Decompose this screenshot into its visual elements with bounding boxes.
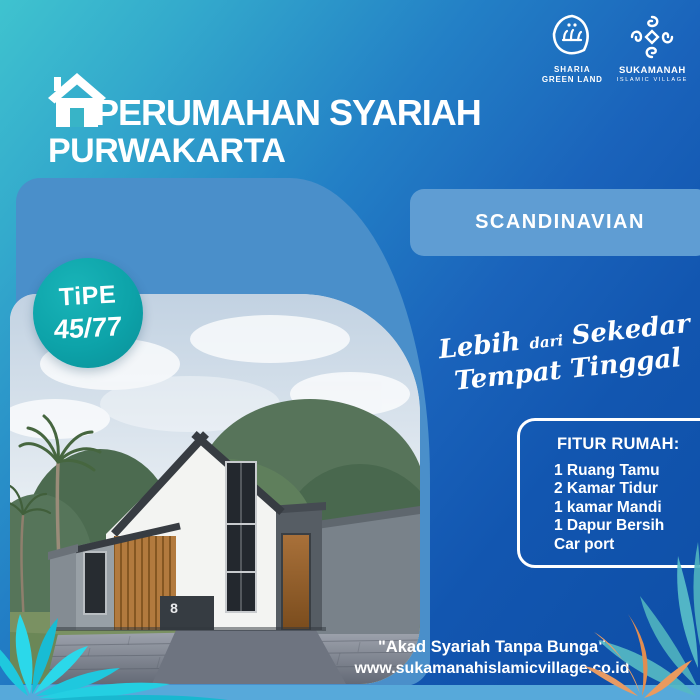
house-number: 8	[162, 600, 186, 616]
footer-website: www.sukamanahislamicvillage.co.id	[352, 660, 632, 678]
type-badge: TiPE 45/77	[33, 258, 143, 368]
feature-item: 1 kamar Mandi	[554, 499, 700, 517]
feature-item: 1 Ruang Tamu	[554, 462, 700, 480]
poster-root: PERUMAHAN SYARIAH PURWAKARTA SHARIA GREE…	[0, 0, 700, 700]
features-list: 1 Ruang Tamu 2 Kamar Tidur 1 kamar Mandi…	[554, 462, 700, 554]
footer: "Akad Syariah Tanpa Bunga" www.sukamanah…	[352, 638, 632, 678]
features-box: FITUR RUMAH: 1 Ruang Tamu 2 Kamar Tidur …	[517, 418, 700, 568]
brand-logos: SHARIA GREEN LAND	[542, 14, 688, 84]
sharia-green-land-logo: SHARIA GREEN LAND	[542, 14, 603, 84]
style-banner: SCANDINAVIAN	[410, 189, 700, 256]
style-banner-label: SCANDINAVIAN	[475, 211, 645, 234]
feature-item: 2 Kamar Tidur	[554, 480, 700, 498]
feature-item: 1 Dapur Bersih	[554, 517, 700, 535]
type-badge-line2: 45/77	[53, 311, 122, 346]
feature-item: Car port	[554, 536, 700, 554]
sharia-logo-text1: SHARIA	[554, 65, 591, 74]
sukamanah-logo-text2: ISLAMIC VILLAGE	[617, 77, 688, 83]
features-title: FITUR RUMAH:	[557, 435, 700, 454]
sharia-logo-text2: GREEN LAND	[542, 75, 603, 84]
page-title-line2: PURWAKARTA	[48, 132, 285, 171]
sukamanah-logo-text1: SUKAMANAH	[619, 65, 686, 76]
sukamanah-logo: SUKAMANAH ISLAMIC VILLAGE	[617, 14, 688, 83]
bottom-bar	[0, 685, 700, 700]
type-badge-line1: TiPE	[59, 281, 118, 313]
page-title-line1: PERUMAHAN SYARIAH	[95, 92, 481, 134]
leaf-calligraphy-icon	[550, 14, 594, 60]
footer-slogan: "Akad Syariah Tanpa Bunga"	[352, 638, 632, 657]
geometric-ornament-icon	[629, 14, 675, 60]
